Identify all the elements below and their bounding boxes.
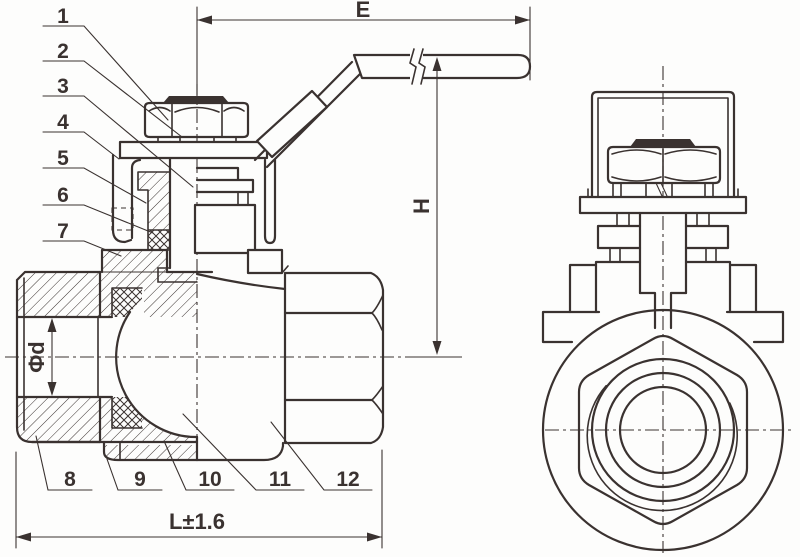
callout-3-label: 3 — [57, 75, 69, 98]
dimension-length: L±1.6 — [16, 450, 382, 548]
callout-6-label: 6 — [57, 184, 69, 207]
callout-7-label: 7 — [57, 220, 69, 243]
section-view — [5, 49, 530, 460]
dim-e-label: E — [356, 0, 371, 22]
callout-8-label: 8 — [64, 468, 76, 491]
hidden-detail — [112, 208, 133, 230]
neck-exterior — [195, 205, 255, 253]
callout-1-label: 1 — [57, 5, 69, 28]
callout-8: 8 — [36, 436, 92, 491]
callout-12-label: 12 — [336, 468, 359, 491]
handle-grip-sleeve — [257, 91, 327, 157]
dim-h-label: H — [409, 198, 434, 214]
callout-10-label: 10 — [198, 468, 221, 491]
callout-4: 4 — [43, 111, 119, 159]
dim-bore-label: Φd — [24, 341, 49, 373]
handle-bar — [354, 55, 530, 78]
end-connector-hex — [285, 273, 383, 443]
handle-lever — [255, 49, 530, 167]
thread-root-arc — [578, 384, 743, 520]
bracket-plate-end — [580, 197, 746, 213]
body-bottom-exterior — [197, 443, 283, 460]
callout-9: 9 — [107, 459, 162, 491]
hex-nut-end — [608, 139, 720, 196]
dimension-h: H — [409, 57, 459, 357]
stopper-tab — [265, 160, 275, 243]
ball-valve-technical-drawing: E H Φd L±1.6 1 2 3 4 — [0, 0, 800, 557]
body-shoulder — [197, 274, 285, 289]
end-view — [543, 66, 792, 553]
stopper-block — [248, 250, 282, 273]
dimension-e: E — [197, 0, 530, 95]
dimension-bore: Φd — [24, 318, 57, 396]
packing — [148, 230, 170, 250]
drawing-canvas: E H Φd L±1.6 1 2 3 4 — [0, 0, 800, 557]
stem-exterior — [195, 160, 288, 460]
callout-9-label: 9 — [134, 468, 146, 491]
callout-11-label: 11 — [269, 468, 292, 491]
callout-5-label: 5 — [57, 147, 69, 170]
dim-length-label: L±1.6 — [169, 509, 225, 534]
callout-2-label: 2 — [57, 40, 69, 63]
callout-4-label: 4 — [57, 111, 69, 134]
